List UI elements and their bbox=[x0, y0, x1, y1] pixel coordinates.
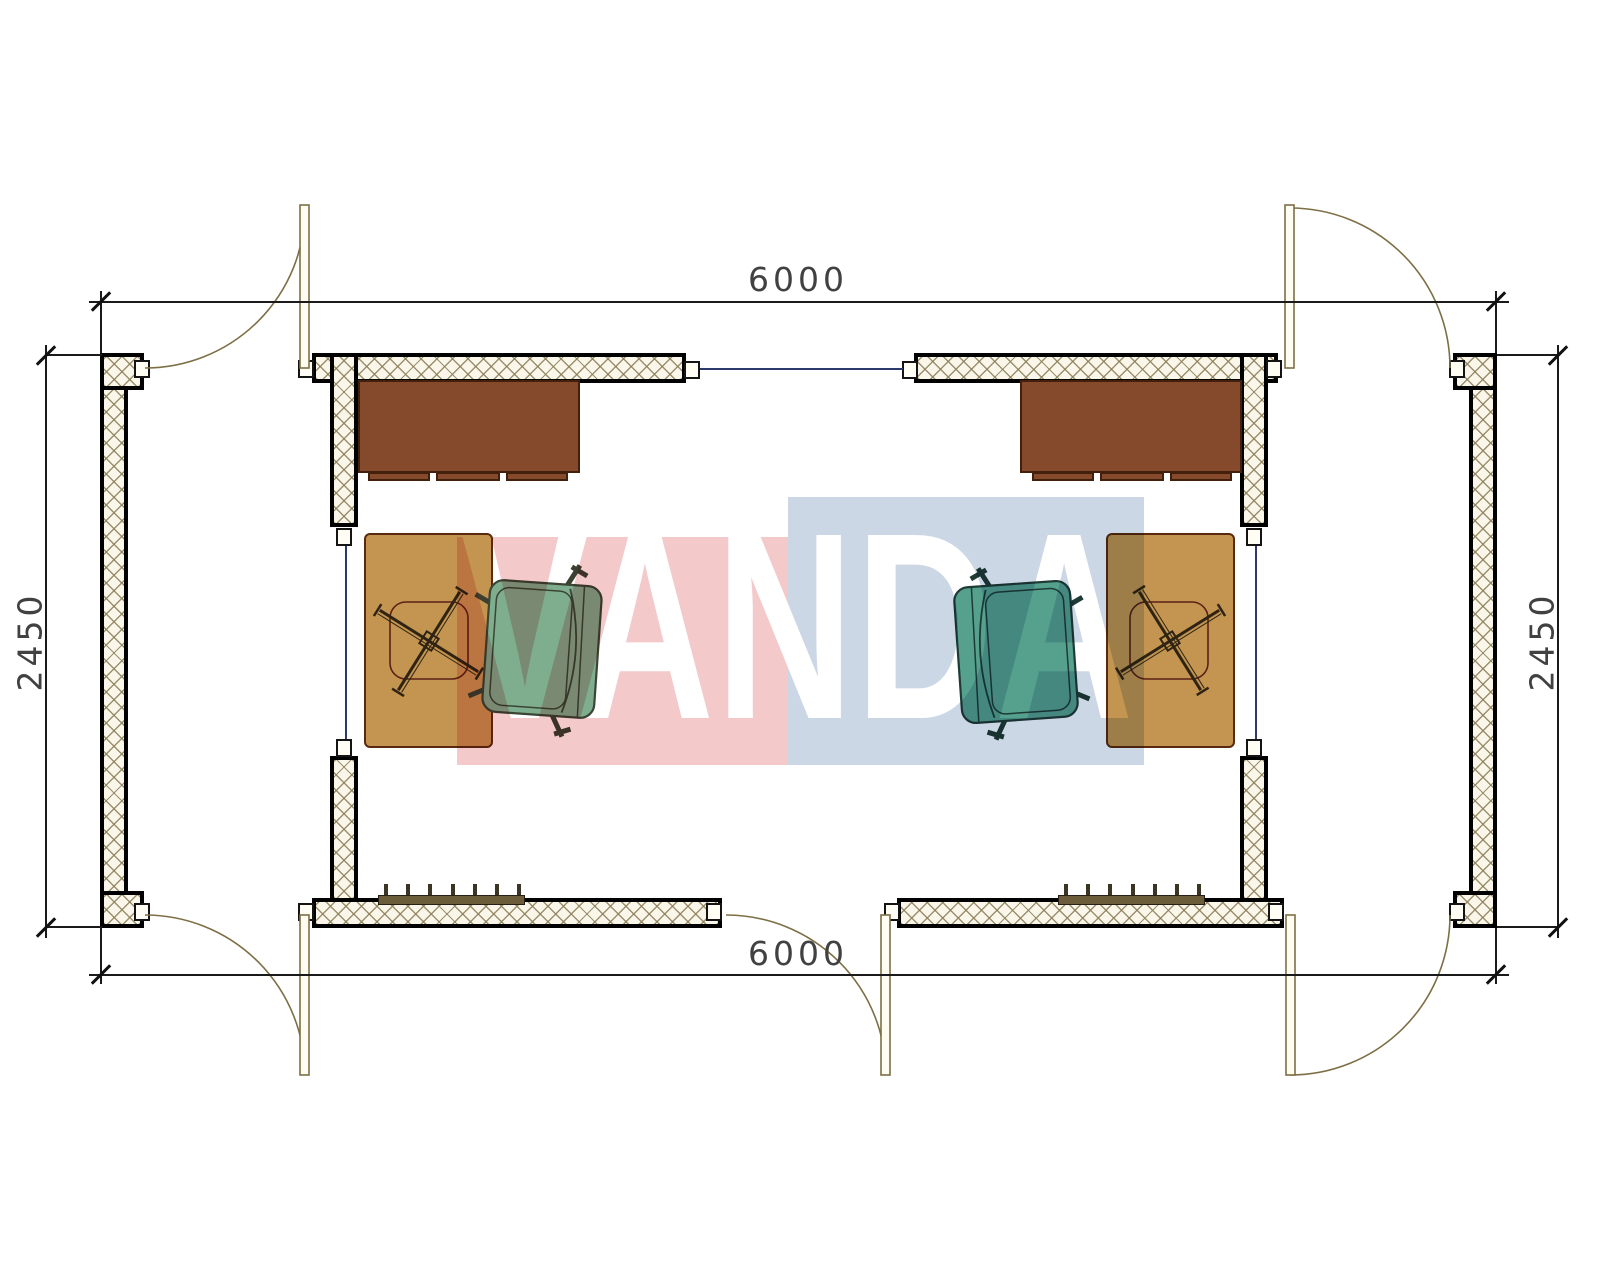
floor-plan-canvas: 6000 6000 2450 2450 bbox=[0, 0, 1600, 1280]
dim-text-top: 6000 bbox=[718, 260, 878, 299]
dim-ext bbox=[1497, 926, 1559, 928]
office-chair-base-right bbox=[1087, 558, 1252, 723]
armchair-left bbox=[466, 558, 604, 738]
door-leaf-bottom-right bbox=[1286, 915, 1295, 1075]
plan-linework bbox=[0, 0, 1600, 1280]
dim-text-right-value: 2450 bbox=[1523, 591, 1562, 691]
dim-ext bbox=[1497, 354, 1559, 356]
armchair-right bbox=[952, 561, 1092, 742]
door-arc-top-left bbox=[145, 208, 305, 368]
door-arc-top-right bbox=[1290, 208, 1450, 368]
dim-ext bbox=[45, 926, 102, 928]
dim-ext bbox=[45, 354, 102, 356]
dim-text-left-value: 2450 bbox=[11, 591, 50, 691]
door-leaf-bottom-left bbox=[300, 915, 309, 1075]
dim-text-bottom: 6000 bbox=[718, 934, 878, 973]
door-leaf-top-right bbox=[1285, 205, 1294, 368]
dim-line-bottom bbox=[89, 974, 1509, 976]
door-arc-bottom-right bbox=[1290, 915, 1450, 1075]
dim-line-top bbox=[89, 301, 1509, 303]
dim-text-right: 2450 bbox=[1512, 581, 1572, 701]
door-leaf-bottom-center bbox=[881, 915, 890, 1075]
dim-text-left: 2450 bbox=[0, 581, 60, 701]
door-arc-bottom-left bbox=[145, 915, 305, 1075]
door-leaf-top-left bbox=[300, 205, 309, 368]
